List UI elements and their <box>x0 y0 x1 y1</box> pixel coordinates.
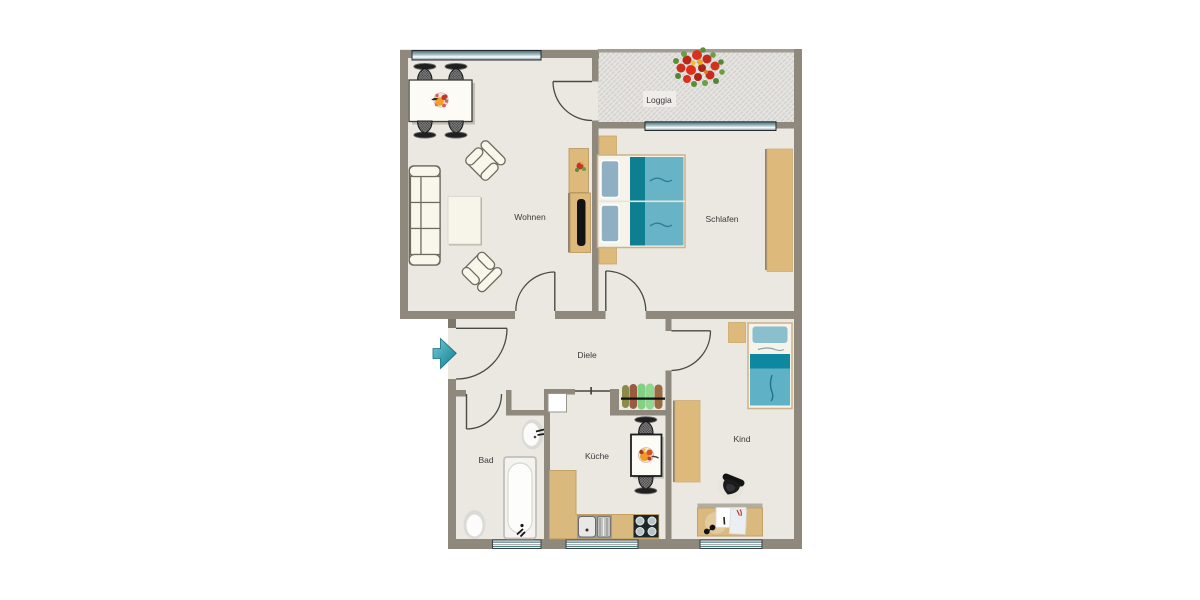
svg-text:Kind: Kind <box>733 434 750 444</box>
svg-text:Bad: Bad <box>478 455 493 465</box>
svg-text:Diele: Diele <box>577 350 597 360</box>
svg-text:Loggia: Loggia <box>646 95 672 105</box>
svg-text:Schlafen: Schlafen <box>705 214 738 224</box>
svg-text:Küche: Küche <box>585 451 609 461</box>
svg-text:Wohnen: Wohnen <box>514 212 546 222</box>
